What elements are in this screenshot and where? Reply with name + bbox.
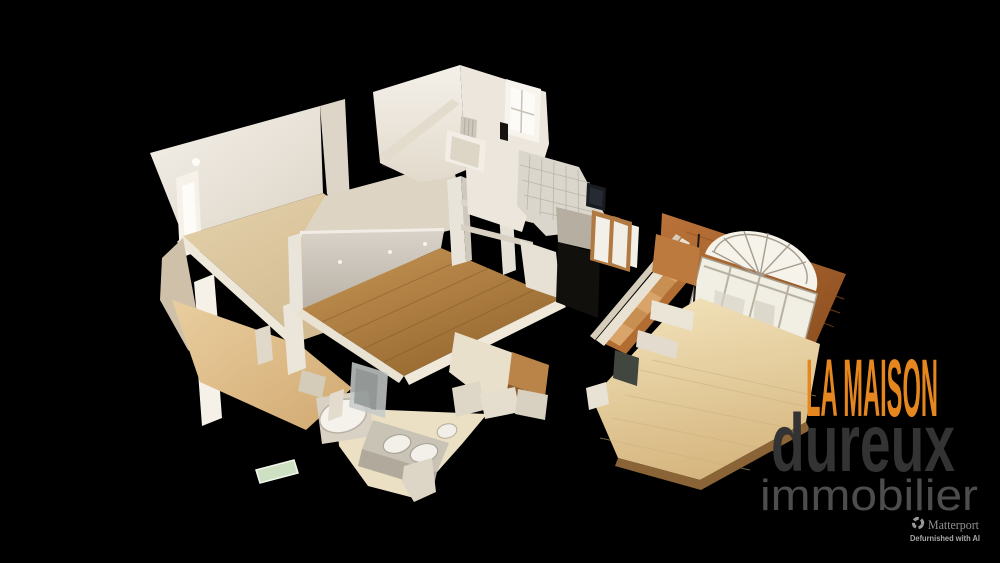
ceiling-light: [192, 158, 200, 166]
attribution: Matterport Defurnished with AI: [910, 517, 980, 543]
wall-fragment: [452, 381, 484, 417]
dollhouse-3d-view[interactable]: LA MAISON dureux immobilier Matterport D…: [0, 0, 1000, 563]
wall-fragment: [255, 325, 273, 365]
attribution-note: Defurnished with AI: [910, 533, 980, 543]
brand-subtitle: immobilier: [760, 471, 978, 520]
shower-inner: [354, 368, 378, 410]
scan-fragment-green: [256, 460, 298, 483]
matterport-viewer-canvas[interactable]: LA MAISON dureux immobilier Matterport D…: [0, 0, 1000, 563]
dark-notch: [500, 122, 508, 141]
window-pane: [594, 216, 610, 263]
dollhouse-scene: [150, 65, 846, 502]
attribution-provider: Matterport: [928, 518, 979, 532]
pillar: [288, 233, 303, 315]
window-pane: [612, 221, 628, 268]
wall: [373, 65, 466, 182]
